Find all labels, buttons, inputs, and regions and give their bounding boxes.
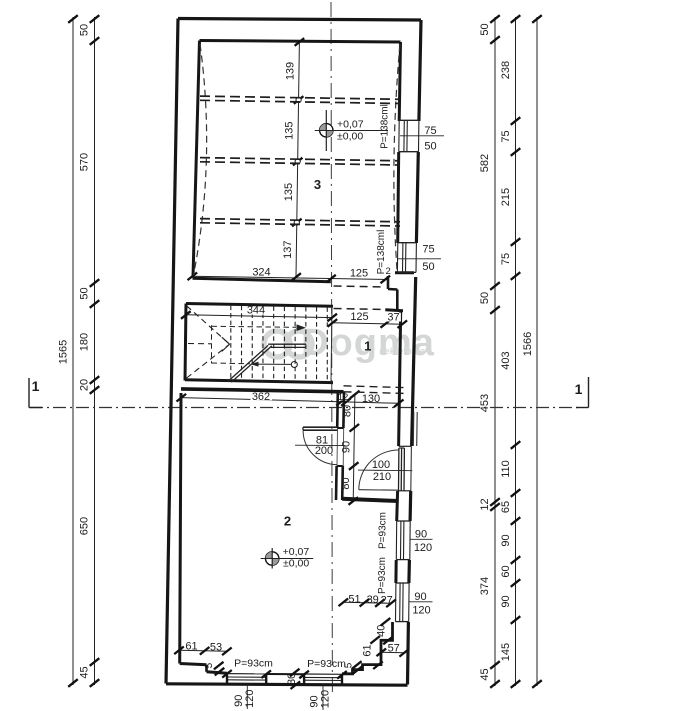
svg-text:45: 45 (79, 666, 91, 678)
svg-text:120: 120 (412, 605, 430, 617)
svg-text:374: 374 (479, 577, 491, 595)
svg-text:120: 120 (414, 542, 432, 554)
svg-text:238: 238 (500, 61, 512, 79)
svg-text:P=93cm: P=93cm (307, 658, 346, 670)
svg-text:27: 27 (381, 595, 393, 607)
svg-text:50: 50 (79, 24, 91, 36)
svg-text:+0,07: +0,07 (283, 546, 310, 558)
svg-text:145: 145 (500, 643, 512, 661)
svg-text:135: 135 (284, 122, 296, 140)
svg-text:125: 125 (350, 268, 368, 280)
svg-text:45: 45 (479, 668, 491, 680)
svg-text:200: 200 (315, 445, 333, 457)
svg-text:180: 180 (79, 333, 91, 351)
svg-text:53: 53 (210, 641, 222, 653)
svg-text:61: 61 (185, 640, 197, 652)
svg-text:39: 39 (367, 594, 379, 606)
svg-text:75: 75 (500, 253, 512, 265)
svg-text:±0,00: ±0,00 (337, 131, 363, 143)
svg-text:90: 90 (500, 534, 512, 546)
svg-text:210: 210 (373, 471, 391, 483)
svg-text:3: 3 (314, 177, 321, 192)
svg-text:344: 344 (247, 305, 265, 317)
svg-text:125: 125 (350, 311, 368, 323)
svg-text:20: 20 (79, 379, 91, 391)
svg-text:P=93cm: P=93cm (377, 512, 388, 549)
svg-text:80: 80 (341, 405, 353, 417)
svg-text:12: 12 (479, 498, 491, 510)
svg-text:5: 5 (204, 662, 215, 668)
svg-text:110: 110 (500, 460, 512, 478)
svg-text:130: 130 (362, 393, 380, 405)
svg-text:75: 75 (424, 125, 436, 137)
svg-text:nekretnine: nekretnine (379, 346, 425, 356)
svg-text:50: 50 (479, 292, 491, 304)
svg-text:50: 50 (79, 287, 91, 299)
svg-text:P=93cm: P=93cm (234, 658, 273, 670)
svg-text:215: 215 (500, 188, 512, 206)
svg-text:90: 90 (500, 595, 512, 607)
svg-text:51: 51 (348, 593, 360, 605)
svg-text:324: 324 (252, 267, 270, 279)
svg-text:120: 120 (320, 690, 332, 708)
svg-text:60: 60 (500, 565, 512, 577)
svg-text:50: 50 (479, 23, 491, 35)
svg-text:P=138cml: P=138cml (380, 104, 391, 149)
svg-text:57: 57 (388, 642, 400, 654)
svg-text:90: 90 (414, 591, 426, 603)
svg-text:90: 90 (415, 529, 427, 541)
svg-text:50: 50 (424, 141, 436, 153)
svg-text:139: 139 (284, 62, 296, 80)
svg-text:65: 65 (500, 501, 512, 513)
svg-text:1: 1 (575, 381, 583, 397)
svg-text:1: 1 (364, 339, 371, 354)
svg-text:120: 120 (244, 690, 256, 708)
svg-text:1565: 1565 (58, 340, 70, 364)
svg-text:±0,00: ±0,00 (283, 558, 309, 570)
svg-text:80: 80 (340, 477, 352, 489)
svg-text:453: 453 (479, 394, 491, 412)
svg-text:403: 403 (500, 351, 512, 369)
svg-text:137: 137 (282, 241, 294, 259)
svg-text:37: 37 (387, 312, 399, 324)
svg-text:362: 362 (252, 391, 270, 403)
svg-text:650: 650 (79, 517, 91, 535)
svg-text:100: 100 (372, 459, 390, 471)
svg-text:P=93cm: P=93cm (377, 557, 388, 594)
svg-text:1566: 1566 (522, 332, 534, 356)
svg-text:570: 570 (79, 153, 91, 171)
svg-text:P=138cml: P=138cml (376, 230, 387, 275)
svg-text:+0,07: +0,07 (337, 119, 364, 131)
svg-text:75: 75 (500, 130, 512, 142)
svg-text:75: 75 (422, 244, 434, 256)
svg-text:50: 50 (422, 261, 434, 273)
svg-text:61: 61 (362, 644, 374, 656)
svg-text:582: 582 (479, 154, 491, 172)
svg-text:2: 2 (284, 514, 291, 529)
svg-text:90: 90 (341, 441, 353, 453)
svg-text:1: 1 (32, 378, 40, 394)
svg-text:135: 135 (283, 183, 295, 201)
